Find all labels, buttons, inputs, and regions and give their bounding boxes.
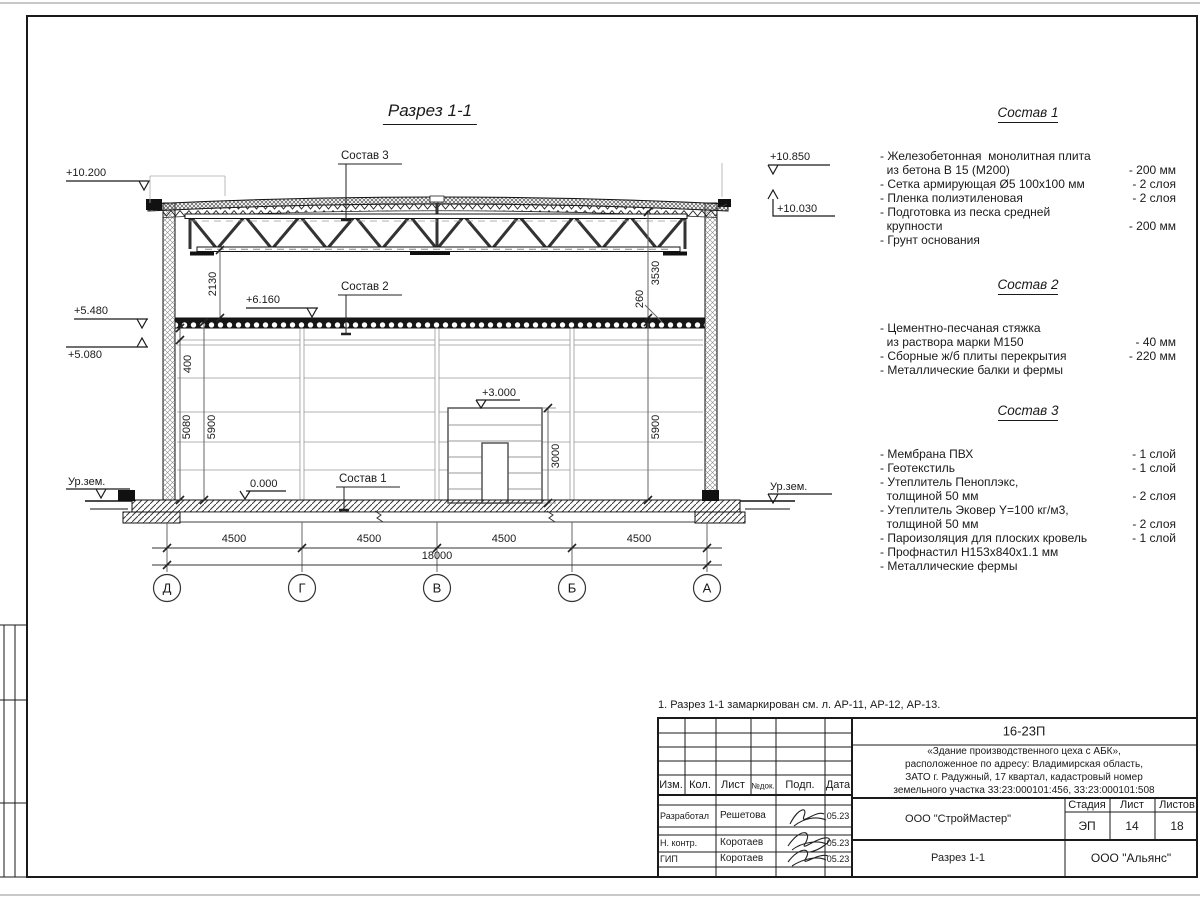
list-item: - Цементно-песчаная стяжка из раствора м… xyxy=(880,321,1176,349)
elevation-left-mid: +5.480 xyxy=(74,305,108,317)
dim-3530: 3530 xyxy=(650,261,662,285)
list-item: - Металлические балки и фермы xyxy=(880,363,1176,377)
layer-qty: - 1 слой xyxy=(1126,531,1176,545)
tb-name-ncontrol: Коротаев xyxy=(720,837,763,848)
list-item: - Геотекстиль - 1 слой xyxy=(880,461,1176,475)
elevation-zero: 0.000 xyxy=(250,478,278,490)
layer-qty: - 2 слоя xyxy=(1126,517,1176,531)
tb-sheet-value: 14 xyxy=(1125,819,1138,833)
dim-5900-left: 5900 xyxy=(206,415,218,439)
layer-name: - Пароизоляция для плоских кровель xyxy=(880,531,1087,545)
door xyxy=(482,443,508,503)
elevation-floor2: +6.160 xyxy=(246,294,280,306)
list-item: - Пароизоляция для плоских кровель - 1 с… xyxy=(880,531,1176,545)
composition-2: Состав 2 - Цементно-песчаная стяжка из р… xyxy=(880,276,1176,377)
tb-date-gip: 05.23 xyxy=(827,854,850,864)
callout-sostav3: Состав 3 xyxy=(341,150,389,162)
layer-name: - Грунт основания xyxy=(880,233,980,247)
tb-org: ООО "СтройМастер" xyxy=(905,813,1011,825)
elevation-mezz: +3.000 xyxy=(482,387,516,399)
side-stamp xyxy=(0,625,27,877)
tb-col-ndok: №док. xyxy=(751,782,774,791)
list-item: - Мембрана ПВХ - 1 слой xyxy=(880,447,1176,461)
elevation-right-top: +10.850 xyxy=(770,151,810,163)
layer-qty: - 2 слоя xyxy=(1126,177,1176,191)
dim-span-4: 4500 xyxy=(627,533,651,545)
tb-sheets-label: Листов xyxy=(1159,799,1195,811)
list-item: - Железобетонная монолитная плита из бет… xyxy=(880,149,1176,177)
layer-name: - Профнастил Н153х840х1.1 мм xyxy=(880,545,1058,559)
dim-2130: 2130 xyxy=(207,272,219,296)
elevation-right-mid: +10.030 xyxy=(777,203,817,215)
layer-qty: - 2 слоя xyxy=(1126,191,1176,205)
tb-contractor: ООО "Альянс" xyxy=(1091,851,1171,865)
page-title: Разрез 1-1 xyxy=(383,101,477,125)
layer-name: - Пленка полиэтиленовая xyxy=(880,191,1023,205)
dim-5900-right: 5900 xyxy=(650,415,662,439)
tb-stage-label: Стадия xyxy=(1068,799,1106,811)
axis-bubble-v: В xyxy=(433,581,442,596)
layer-name: - Сетка армирующая Ø5 100х100 мм xyxy=(880,177,1085,191)
list-item: - Грунт основания xyxy=(880,233,1176,247)
tb-doc-number: 16-23П xyxy=(1003,724,1046,739)
dim-span-3: 4500 xyxy=(492,533,516,545)
layer-qty: - 220 мм xyxy=(1123,349,1176,363)
tb-name-developer: Решетова xyxy=(720,810,766,821)
tb-role-ncontrol: Н. контр. xyxy=(660,838,697,848)
elevation-left-top: +10.200 xyxy=(66,167,106,179)
ground-label-right: Ур.зем. xyxy=(770,481,807,493)
dim-5080: 5080 xyxy=(181,415,193,439)
layer-name: - Подготовка из песка средней крупности xyxy=(880,205,1050,233)
layer-name: - Цементно-песчаная стяжка из раствора м… xyxy=(880,321,1041,349)
axis-bubble-a: А xyxy=(703,581,712,596)
tb-role-gip: ГИП xyxy=(660,854,678,864)
tb-col-list: Лист xyxy=(721,779,745,791)
tb-name-gip: Коротаев xyxy=(720,853,763,864)
composition-1-title: Состав 1 xyxy=(880,104,1176,123)
tb-col-kol: Кол. xyxy=(689,779,711,791)
tb-stage-value: ЭП xyxy=(1078,819,1095,833)
tb-sheets-value: 18 xyxy=(1170,819,1183,833)
vestibule-elevation xyxy=(448,408,542,503)
dim-span-1: 4500 xyxy=(222,533,246,545)
ground-floor xyxy=(85,490,795,523)
list-item: - Подготовка из песка средней крупности … xyxy=(880,205,1176,233)
tb-col-podp: Подп. xyxy=(785,779,814,791)
tb-role-developer: Разработал xyxy=(660,811,709,821)
list-item: - Утеплитель Эковер Y=100 кг/м3, толщино… xyxy=(880,503,1176,531)
signatures xyxy=(788,810,829,866)
layer-qty: - 2 слоя xyxy=(1126,489,1176,503)
interior-lines xyxy=(177,328,703,500)
layer-qty: - 200 мм xyxy=(1123,163,1176,177)
tb-date-ncontrol: 05.23 xyxy=(827,838,850,848)
list-item: - Пленка полиэтиленовая - 2 слоя xyxy=(880,191,1176,205)
axis-bubble-g: Г xyxy=(298,581,305,596)
list-item: - Утеплитель Пеноплэкс, толщиной 50 мм -… xyxy=(880,475,1176,503)
callout-sostav1: Состав 1 xyxy=(339,473,387,485)
tb-drawing-name: Разрез 1-1 xyxy=(931,852,985,864)
layer-name: - Сборные ж/б плиты перекрытия xyxy=(880,349,1066,363)
vertical-dimensions xyxy=(176,208,662,507)
sheet-note: 1. Разрез 1-1 замаркирован см. л. АР-11,… xyxy=(658,699,940,711)
list-item: - Металлические фермы xyxy=(880,559,1176,573)
dim-260: 260 xyxy=(634,290,646,308)
tb-project-description: «Здание производственного цеха с АБК», р… xyxy=(854,745,1194,797)
dim-total: 18000 xyxy=(422,550,453,562)
layer-name: - Утеплитель Пеноплэкс, толщиной 50 мм xyxy=(880,475,1018,503)
callout-sostav2: Состав 2 xyxy=(341,281,389,293)
layer-name: - Мембрана ПВХ xyxy=(880,447,973,461)
layer-name: - Металлические балки и фермы xyxy=(880,363,1063,377)
floor-slab-6160 xyxy=(175,318,705,328)
axis-bubble-d: Д xyxy=(163,581,172,596)
elevation-marks xyxy=(66,163,835,503)
layer-qty: - 1 слой xyxy=(1126,461,1176,475)
dim-span-2: 4500 xyxy=(357,533,381,545)
roof-truss xyxy=(185,203,687,256)
composition-3-title: Состав 3 xyxy=(880,402,1176,421)
callout-leaders xyxy=(336,164,402,510)
layer-name: - Утеплитель Эковер Y=100 кг/м3, толщино… xyxy=(880,503,1069,531)
roof-assembly xyxy=(146,196,731,218)
composition-2-title: Состав 2 xyxy=(880,276,1176,295)
tb-sheet-label: Лист xyxy=(1120,799,1144,811)
layer-qty: - 200 мм xyxy=(1123,219,1176,233)
dim-3000: 3000 xyxy=(550,444,562,468)
layer-qty: - 1 слой xyxy=(1126,447,1176,461)
tb-col-data: Дата xyxy=(826,779,850,791)
layer-name: - Геотекстиль xyxy=(880,461,955,475)
elevation-left-low: +5.080 xyxy=(68,349,102,361)
list-item: - Сетка армирующая Ø5 100х100 мм - 2 сло… xyxy=(880,177,1176,191)
layer-name: - Железобетонная монолитная плита из бет… xyxy=(880,149,1091,177)
tb-date-developer: 05.23 xyxy=(827,811,850,821)
tb-col-izm: Изм. xyxy=(659,779,683,791)
composition-1: Состав 1 - Железобетонная монолитная пли… xyxy=(880,104,1176,247)
list-item: - Сборные ж/б плиты перекрытия - 220 мм xyxy=(880,349,1176,363)
layer-qty: - 40 мм xyxy=(1129,335,1176,349)
ground-label-left: Ур.зем. xyxy=(68,476,105,488)
section-walls xyxy=(163,203,717,500)
layer-name: - Металлические фермы xyxy=(880,559,1017,573)
list-item: - Профнастил Н153х840х1.1 мм xyxy=(880,545,1176,559)
sheet: Разрез 1-1 Состав 3 Состав 2 Состав 1 +1… xyxy=(0,0,1200,900)
composition-3: Состав 3 - Мембрана ПВХ - 1 слой - Геоте… xyxy=(880,402,1176,573)
dim-400: 400 xyxy=(182,355,194,373)
axis-bubble-b: Б xyxy=(568,581,577,596)
